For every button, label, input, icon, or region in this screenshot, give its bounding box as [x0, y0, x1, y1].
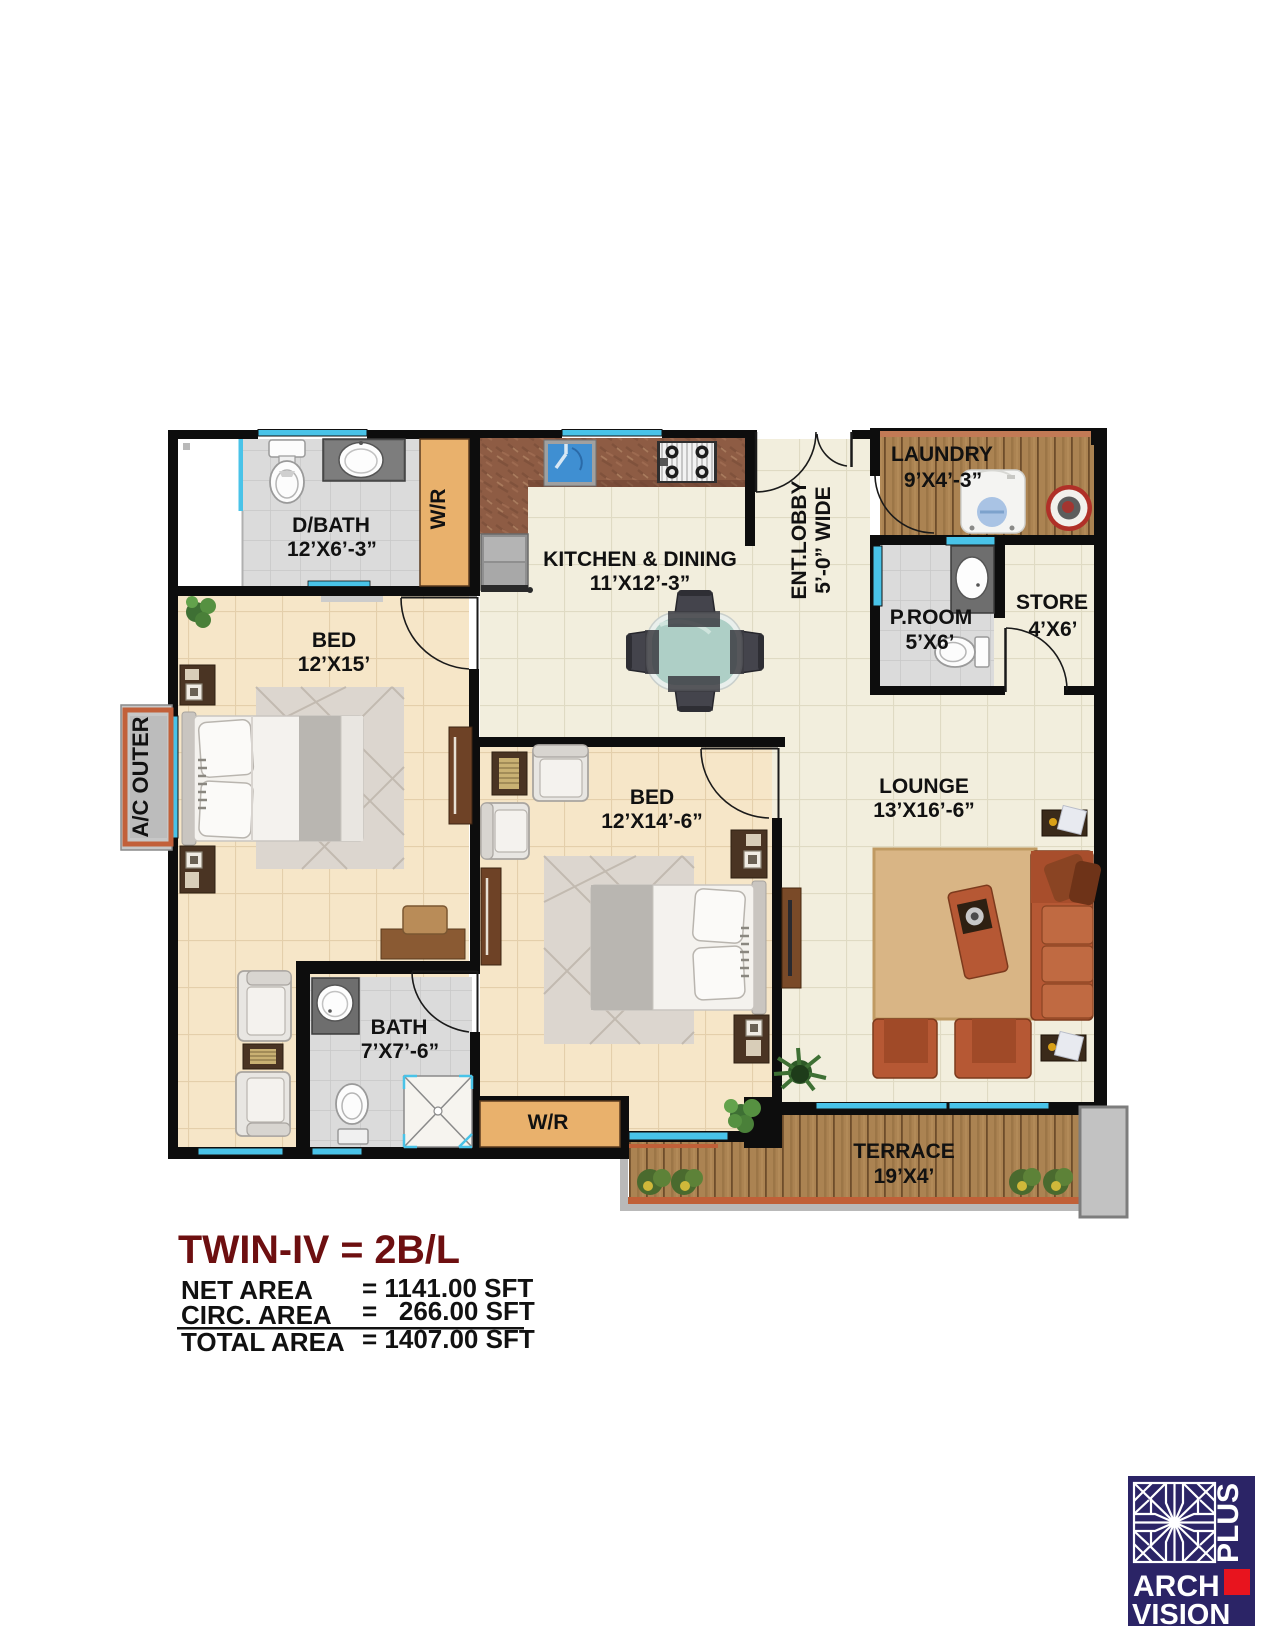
svg-text:7’X7’-6”: 7’X7’-6”: [361, 1040, 439, 1063]
svg-text:P.ROOM: P.ROOM: [890, 606, 972, 629]
svg-text:BATH: BATH: [371, 1016, 428, 1039]
svg-text:11’X12’-3”: 11’X12’-3”: [590, 572, 690, 595]
svg-text:12’X14’-6”: 12’X14’-6”: [601, 810, 703, 833]
svg-text:4’X6’: 4’X6’: [1028, 618, 1077, 641]
svg-text:= 1407.00 SFT: = 1407.00 SFT: [362, 1324, 535, 1354]
svg-text:5’X6’: 5’X6’: [905, 631, 954, 654]
svg-text:BED: BED: [312, 629, 356, 652]
svg-text:PLUS: PLUS: [1212, 1483, 1245, 1563]
svg-text:KITCHEN & DINING: KITCHEN & DINING: [543, 548, 737, 571]
svg-text:A/C OUTER: A/C OUTER: [128, 716, 153, 837]
svg-text:W/R: W/R: [528, 1111, 569, 1134]
svg-text:CIRC. AREA: CIRC. AREA: [181, 1300, 332, 1330]
svg-text:13’X16’-6”: 13’X16’-6”: [873, 799, 975, 822]
svg-text:5’-0” WIDE: 5’-0” WIDE: [812, 486, 835, 593]
svg-text:12’X6’-3”: 12’X6’-3”: [287, 538, 377, 561]
svg-text:19’X4’: 19’X4’: [874, 1165, 935, 1188]
svg-text:W/R: W/R: [427, 489, 450, 530]
svg-text:TOTAL AREA: TOTAL AREA: [181, 1327, 345, 1357]
svg-text:ENT.LOBBY: ENT.LOBBY: [788, 480, 811, 599]
svg-text:= 266.00 SFT: = 266.00 SFT: [362, 1296, 535, 1326]
svg-text:STORE: STORE: [1016, 591, 1088, 614]
svg-text:9’X4’-3”: 9’X4’-3”: [904, 469, 982, 492]
svg-text:LOUNGE: LOUNGE: [879, 775, 969, 798]
svg-text:TWIN-IV = 2B/L: TWIN-IV = 2B/L: [178, 1228, 460, 1272]
svg-text:12’X15’: 12’X15’: [298, 653, 370, 676]
svg-text:TERRACE: TERRACE: [853, 1140, 955, 1163]
svg-text:BED: BED: [630, 786, 674, 809]
svg-text:D/BATH: D/BATH: [292, 514, 370, 537]
svg-text:VISION: VISION: [1132, 1599, 1230, 1631]
svg-text:LAUNDRY: LAUNDRY: [891, 443, 993, 466]
